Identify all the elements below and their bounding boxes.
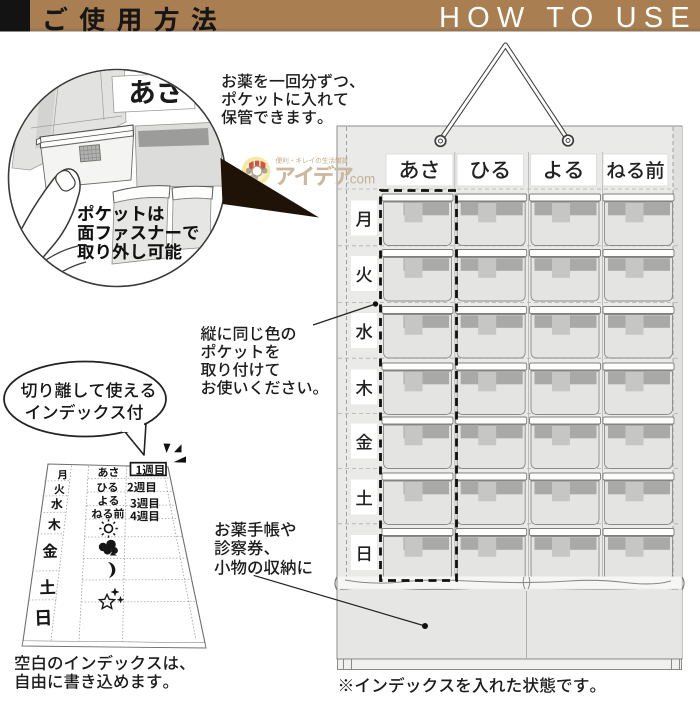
svg-text:HOW TO USE: HOW TO USE (439, 2, 697, 34)
svg-text:.com: .com (346, 172, 375, 187)
